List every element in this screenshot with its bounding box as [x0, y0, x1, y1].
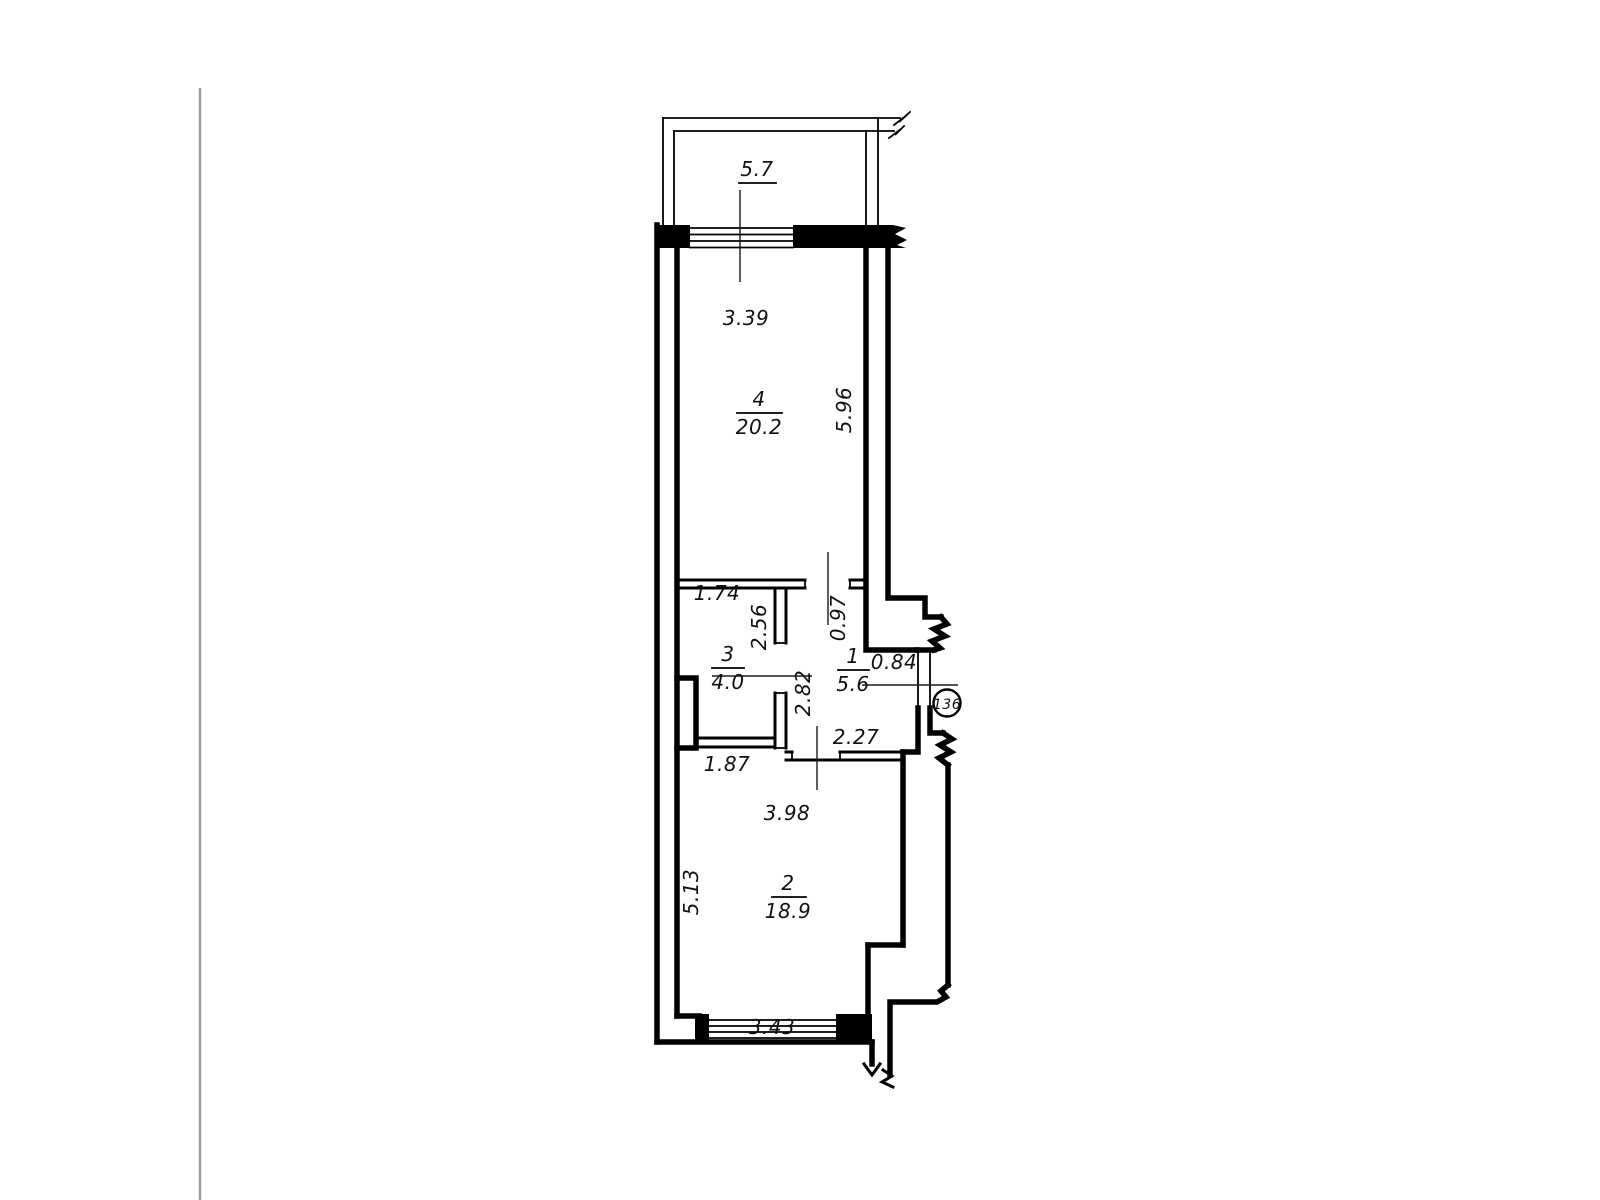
- wall-break-entrance-right: [939, 733, 952, 765]
- dim-room1-right-top: 0.97: [826, 595, 850, 642]
- dim-room1-bottom: 2.27: [833, 725, 880, 749]
- dim-entrance-door: 0.84: [871, 650, 918, 674]
- room4-area: 20.2: [736, 415, 783, 439]
- dim-bottom-window: 3.43: [749, 1015, 796, 1039]
- room4-number: 4: [752, 387, 765, 411]
- dim-room1-left: 2.82: [791, 670, 815, 717]
- dim-room2-depth: 5.13: [679, 869, 703, 916]
- apartment-number: 136: [933, 697, 961, 713]
- wall-break-top-right: [893, 225, 907, 248]
- room3-area: 4.0: [711, 670, 744, 694]
- room2-area: 18.9: [765, 899, 812, 923]
- left-wall: [657, 225, 696, 1042]
- dim-room3-depth: 2.56: [747, 604, 771, 651]
- dim-room2-width: 3.98: [764, 801, 811, 825]
- room2-number: 2: [781, 871, 794, 895]
- room3-number: 3: [721, 642, 734, 666]
- dim-room2-top-left: 1.87: [704, 752, 751, 776]
- top-window: [690, 228, 793, 248]
- room1-number: 1: [846, 644, 859, 668]
- dim-room3-width: 1.74: [694, 581, 741, 605]
- dim-room4-width: 3.39: [723, 306, 770, 330]
- floor-plan-page: 5.7 3.39 4 20.2 5.96 1.74 2.56 3 4.0 0.9…: [0, 0, 1600, 1200]
- room1-area: 5.6: [836, 672, 869, 696]
- left-wall-pilaster: [677, 678, 696, 748]
- balcony-outline: [663, 112, 910, 226]
- wall-break-lower-right: [890, 985, 948, 1075]
- floor-plan-drawing: 5.7 3.39 4 20.2 5.96 1.74 2.56 3 4.0 0.9…: [0, 0, 1600, 1200]
- balcony-area-label: 5.7: [740, 157, 773, 181]
- wall-break-vestibule: [932, 617, 947, 650]
- dim-room4-depth: 5.96: [832, 387, 856, 434]
